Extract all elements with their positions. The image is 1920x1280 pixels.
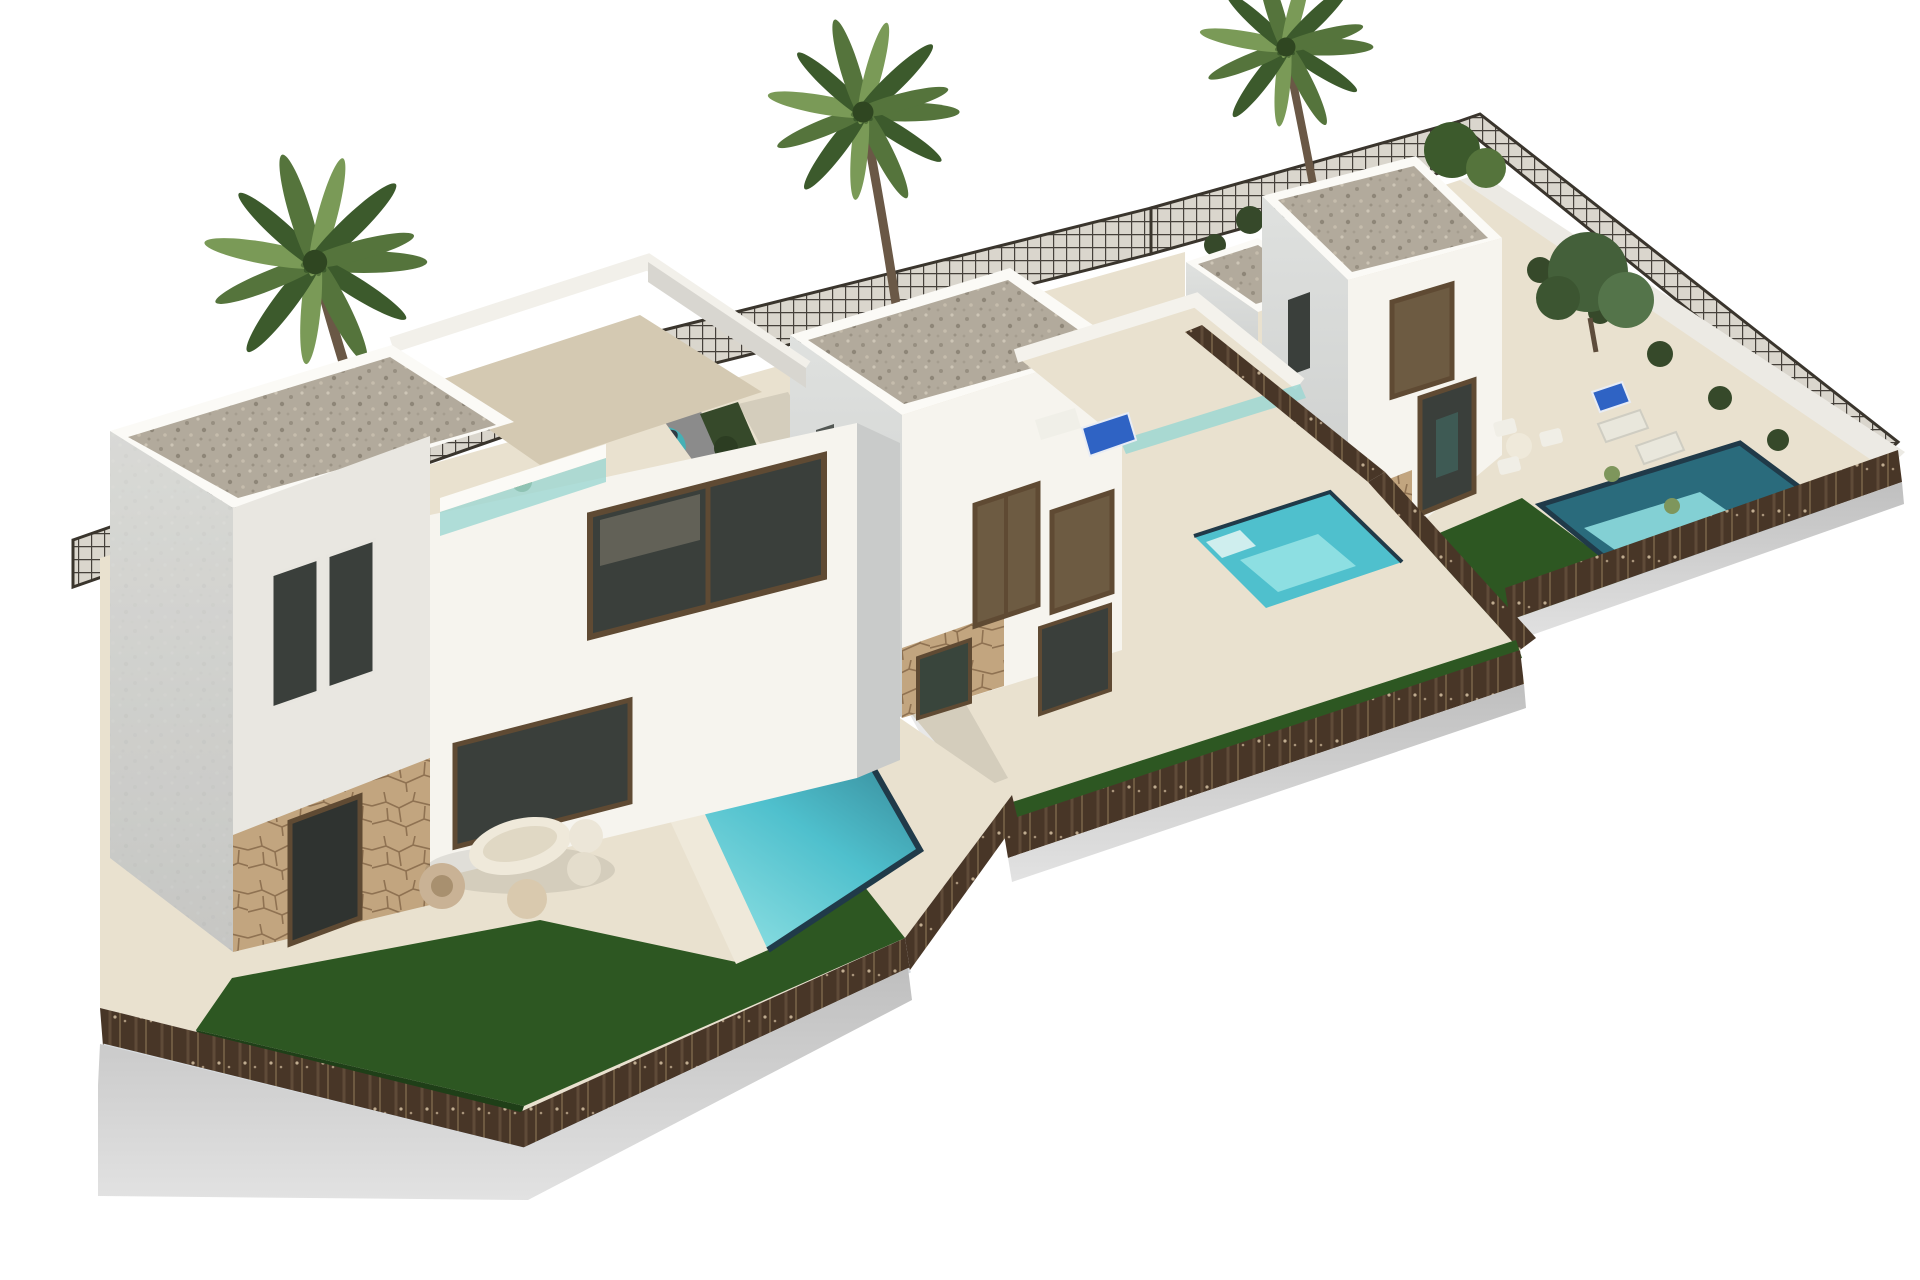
pouf	[507, 879, 547, 919]
right-villa-window-reflection	[1436, 412, 1458, 478]
deck-plant	[1604, 466, 1620, 482]
middle-villa-terrace-window	[1052, 492, 1112, 612]
left-villa-stone-window	[290, 796, 360, 944]
render-canvas: Aerial 3D architectural render of a resi…	[0, 0, 1920, 1280]
round-lounge-chair-seat	[431, 875, 453, 897]
right-villa-upper-window	[1392, 284, 1452, 397]
right-villa-west-window-upper	[1288, 292, 1310, 376]
left-villa-east-wall	[857, 423, 900, 778]
pouf	[569, 819, 603, 853]
left-villa-upper-window	[272, 559, 318, 708]
deck-plant	[1664, 498, 1680, 514]
dining-table	[1506, 433, 1532, 459]
pouf	[567, 852, 601, 886]
left-villa-upper-window	[328, 540, 374, 688]
villa-render-svg	[0, 0, 1920, 1280]
